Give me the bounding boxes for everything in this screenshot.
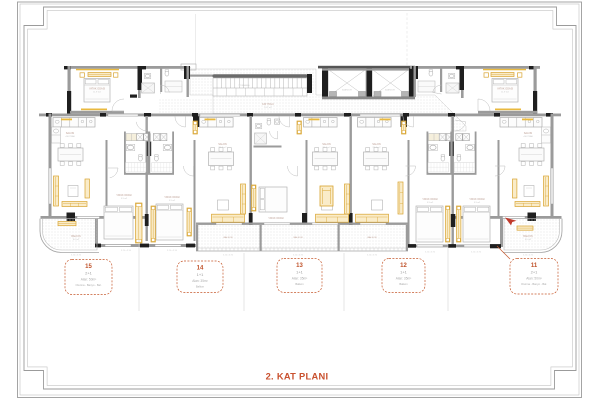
svg-text:11.9 m2: 11.9 m2 (501, 92, 510, 94)
svg-text:BALKON: BALKON (368, 236, 377, 239)
svg-text:Balkon: Balkon (196, 285, 205, 289)
svg-text:11: 11 (531, 263, 538, 269)
svg-text:6.6 m2: 6.6 m2 (525, 239, 532, 241)
svg-text:Alan: 35m²: Alan: 35m² (396, 277, 411, 281)
svg-text:Alan: 50m²: Alan: 50m² (526, 277, 541, 281)
svg-text:3.20 x 3.90: 3.20 x 3.90 (523, 255, 534, 257)
svg-text:11.9 m2: 11.9 m2 (93, 92, 102, 94)
svg-text:ASANSOR: ASANSOR (385, 89, 395, 92)
svg-text:SALON: SALON (524, 132, 533, 135)
svg-text:YATAK ODASI: YATAK ODASI (116, 194, 132, 197)
svg-text:BALKON: BALKON (294, 236, 303, 239)
svg-text:+MUTFAK: +MUTFAK (523, 135, 534, 138)
svg-text:3.20 x 3.90: 3.20 x 3.90 (167, 250, 178, 252)
svg-text:Oturma - Banyo - Bal.: Oturma - Banyo - Bal. (521, 282, 547, 286)
svg-text:9.3 m2: 9.3 m2 (169, 200, 176, 202)
svg-text:YATAK ODASI: YATAK ODASI (164, 196, 180, 199)
svg-text:1+1: 1+1 (400, 270, 408, 275)
svg-text:Balkon: Balkon (295, 282, 304, 286)
svg-text:BALKON: BALKON (224, 236, 233, 239)
svg-text:3.20 x 3.90: 3.20 x 3.90 (367, 255, 378, 257)
svg-text:BALKON: BALKON (523, 235, 533, 238)
svg-text:Alan: 50m²: Alan: 50m² (81, 278, 96, 282)
svg-text:YATAK ODASI: YATAK ODASI (469, 198, 485, 201)
svg-text:3.20 x 3.90: 3.20 x 3.90 (471, 251, 482, 253)
svg-text:12: 12 (400, 263, 407, 269)
svg-text:9.3 m2: 9.3 m2 (474, 202, 481, 204)
svg-text:6.6 m2: 6.6 m2 (73, 239, 80, 241)
svg-text:YATAK ODASI: YATAK ODASI (422, 198, 438, 201)
svg-text:3.20 x 3.90: 3.20 x 3.90 (71, 255, 82, 257)
svg-text:Balkon: Balkon (399, 282, 408, 286)
svg-text:3.20 x 3.90: 3.20 x 3.90 (425, 251, 436, 253)
svg-text:2. KAT PLANI: 2. KAT PLANI (266, 372, 329, 382)
svg-text:2+1: 2+1 (531, 270, 539, 275)
svg-text:Alan: 35m²: Alan: 35m² (292, 277, 307, 281)
svg-text:1+1: 1+1 (197, 272, 205, 277)
svg-text:BALKON: BALKON (71, 235, 81, 238)
svg-text:+MUTFAK: +MUTFAK (65, 135, 76, 138)
svg-text:Alan: 35m²: Alan: 35m² (192, 279, 207, 283)
svg-text:YATAK ODASI: YATAK ODASI (268, 217, 284, 220)
svg-text:14: 14 (197, 265, 204, 271)
svg-text:1+1: 1+1 (296, 270, 304, 275)
svg-text:ASANSOR: ASANSOR (342, 89, 352, 92)
svg-text:2+1: 2+1 (85, 271, 93, 276)
svg-text:KAT HOLU: KAT HOLU (262, 103, 274, 106)
svg-text:SALON: SALON (322, 143, 331, 146)
svg-text:9.3 m2: 9.3 m2 (121, 198, 128, 200)
svg-text:3.20 x 3.90: 3.20 x 3.90 (121, 250, 132, 252)
svg-text:SALON: SALON (66, 132, 75, 135)
svg-text:Oturma - Banyo - Bal.: Oturma - Banyo - Bal. (76, 283, 102, 287)
svg-text:13: 13 (296, 263, 303, 269)
svg-text:3.20 x 3.90: 3.20 x 3.90 (293, 255, 304, 257)
svg-text:15: 15 (85, 264, 92, 270)
svg-text:SALON: SALON (218, 143, 227, 146)
svg-text:17 RISERS: 17 RISERS (238, 85, 250, 87)
svg-text:3.20 x 3.90: 3.20 x 3.90 (223, 255, 234, 257)
svg-text:SALON: SALON (372, 143, 381, 146)
svg-text:YATAK ODASI: YATAK ODASI (89, 88, 105, 91)
svg-text:14.2 m2: 14.2 m2 (264, 107, 272, 109)
svg-text:YATAK ODASI: YATAK ODASI (497, 88, 513, 91)
svg-text:9.3 m2: 9.3 m2 (427, 202, 434, 204)
